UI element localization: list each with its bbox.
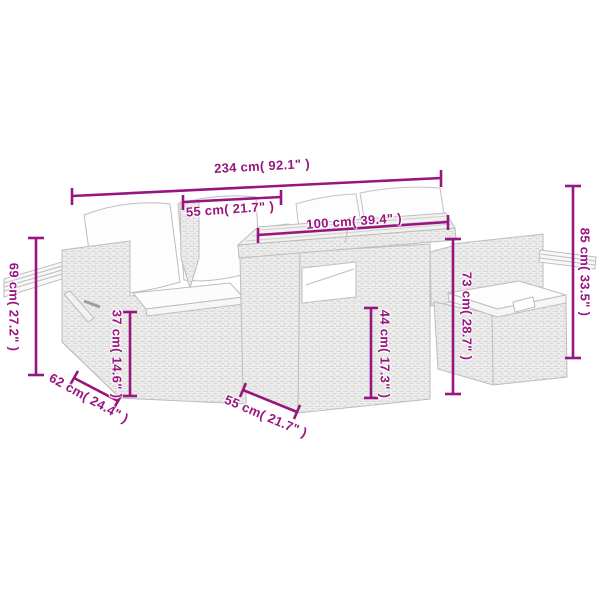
dim-line-arm-shelf-height bbox=[28, 238, 44, 375]
left-sofa bbox=[4, 196, 260, 404]
dim-label-seat-height: 37 cm( 14.6" ) bbox=[110, 310, 125, 398]
dim-label-table-height: 73 cm( 28.7" ) bbox=[460, 272, 475, 360]
product-dimension-diagram: 234 cm( 92.1" ) 55 cm( 21.7" ) 100 cm( 3… bbox=[0, 0, 600, 600]
dim-label-arm-shelf-height: 69 cm( 27.2" ) bbox=[7, 263, 22, 351]
furniture-illustration bbox=[0, 0, 600, 600]
table-side-face bbox=[240, 252, 300, 413]
dim-label-table-body-height: 44 cm( 17.3" ) bbox=[378, 310, 393, 398]
dim-label-overall-height: 85 cm( 33.5" ) bbox=[578, 228, 593, 316]
storage-table bbox=[238, 213, 456, 413]
table-opening bbox=[302, 262, 356, 303]
